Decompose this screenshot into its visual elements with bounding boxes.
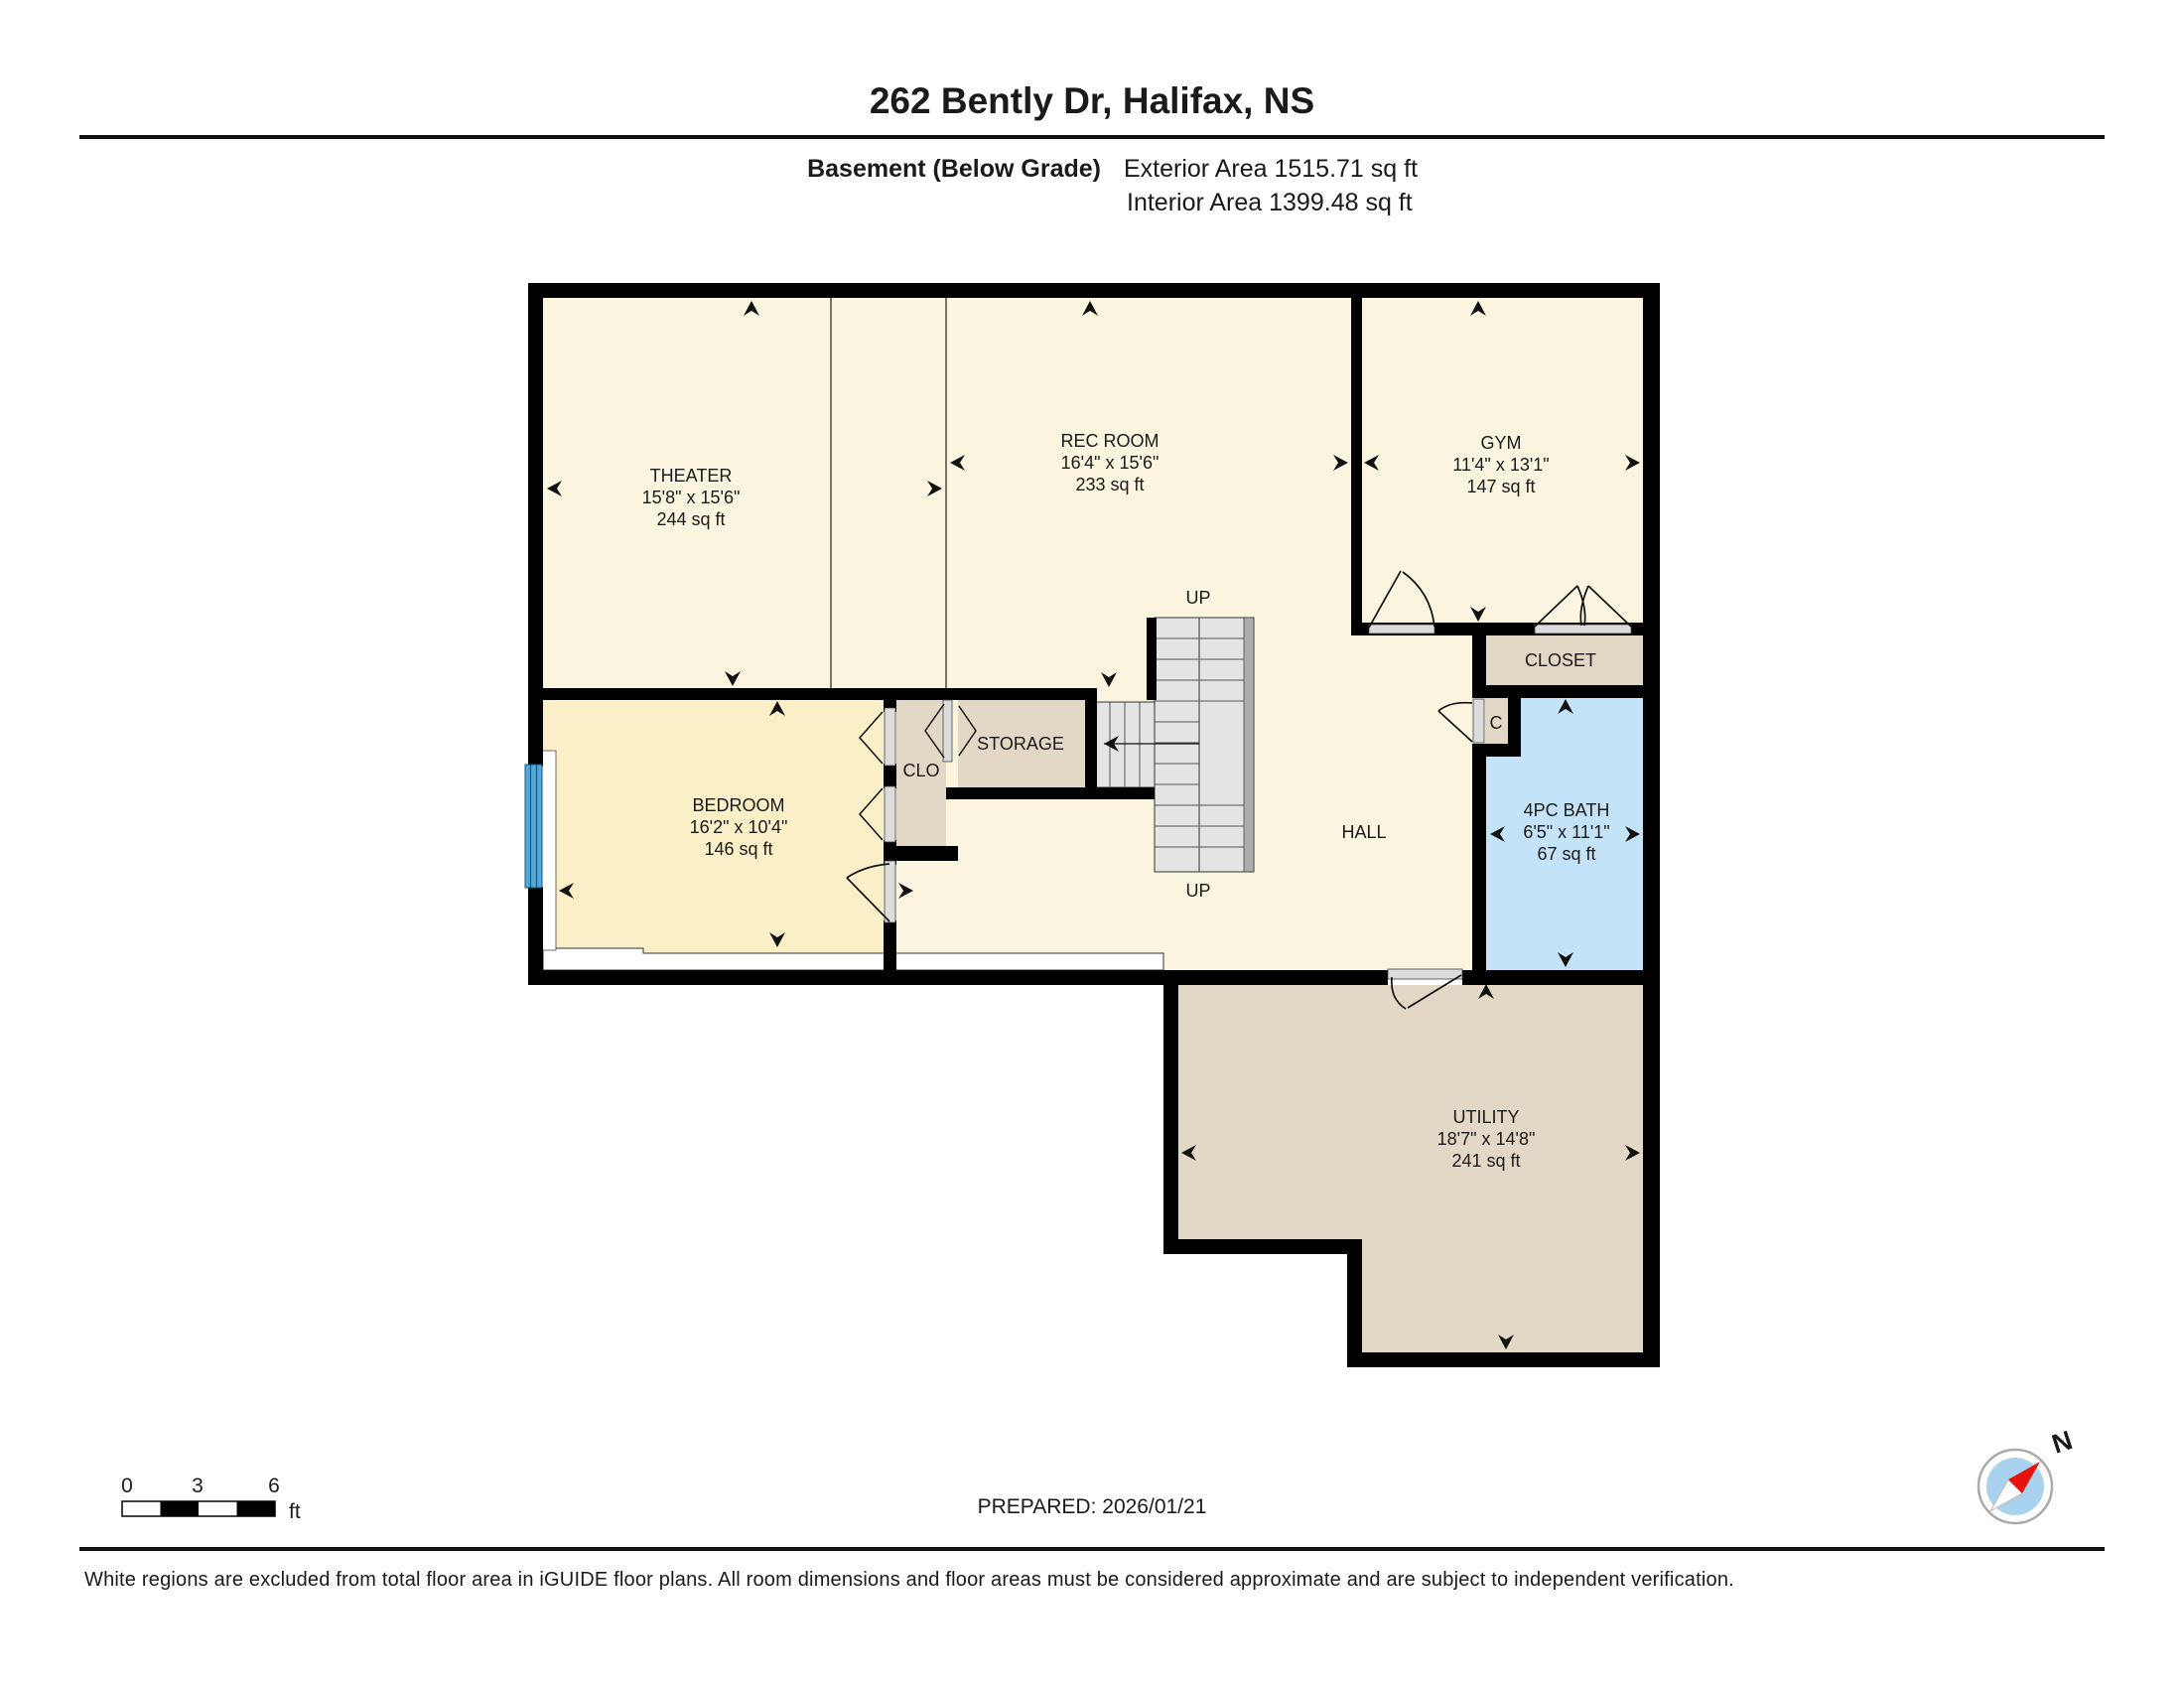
closet-label: CLOSET (1525, 650, 1596, 670)
theater-area: 244 sq ft (656, 509, 725, 529)
door-sill-bedroom (885, 861, 895, 922)
wall-stair-stub (1147, 618, 1157, 700)
exterior-area-value: Exterior Area 1515.71 sq ft (1124, 155, 1418, 183)
interior-area-value: Interior Area 1399.48 sq ft (1127, 189, 1413, 216)
disclaimer-text: White regions are excluded from total fl… (84, 1569, 1734, 1591)
door-sill-clo-storage (943, 700, 952, 762)
bath-name: 4PC BATH (1524, 800, 1610, 820)
bedroom-window (525, 765, 542, 888)
gym-area: 147 sq ft (1466, 477, 1535, 496)
floor-plan-canvas: 262 Bently Dr, Halifax, NS Basement (Bel… (0, 0, 2184, 1688)
wall-bath-left (1472, 757, 1486, 970)
compass: N (1979, 1425, 2076, 1523)
door-sill-gym-double (1535, 625, 1631, 633)
wall-gym-left (1351, 298, 1362, 635)
utility-dims: 18'7" x 14'8" (1437, 1129, 1536, 1149)
wall-bedroom-right-2 (884, 764, 896, 788)
door-sill-clo-upper (885, 708, 895, 766)
bath-dims: 6'5" x 11'1" (1523, 822, 1609, 842)
header-rule (79, 135, 2105, 139)
bedroom-name: BEDROOM (692, 795, 784, 815)
door-sill-gym-left (1369, 625, 1434, 633)
rec-room-name: REC ROOM (1061, 431, 1160, 451)
scale-unit: ft (289, 1500, 301, 1523)
utility-name: UTILITY (1452, 1107, 1519, 1127)
up-label-bottom: UP (1185, 881, 1210, 901)
c-closet-label: C (1490, 713, 1503, 733)
wall-utility-notch-v (1347, 1239, 1362, 1367)
wall-bedroom-right-4 (884, 920, 896, 970)
theater-name: THEATER (650, 466, 733, 486)
scale-bar: 0 3 6 ft (121, 1475, 301, 1523)
wall-utility-bottom (1347, 1352, 1660, 1367)
scale-bar-seg-4 (237, 1501, 276, 1516)
storage-label: STORAGE (977, 734, 1064, 754)
wall-bottom-bath (1462, 970, 1660, 985)
stair-rail-strip (1244, 618, 1254, 872)
rec-room-area: 233 sq ft (1075, 475, 1144, 494)
wall-right (1643, 283, 1660, 1367)
wall-c-bottom (1472, 744, 1521, 757)
window-glass (525, 765, 542, 888)
window-recess-strip (542, 751, 556, 950)
stair-main-flight (1155, 618, 1254, 872)
compass-north-label: N (2048, 1425, 2076, 1460)
page-title: 262 Bently Dr, Halifax, NS (870, 80, 1314, 121)
scale-tick-0: 0 (121, 1475, 133, 1497)
scale-tick-3: 3 (192, 1475, 204, 1497)
prepared-date: PREPARED: 2026/01/21 (978, 1495, 1207, 1518)
wall-closet-bottom (1472, 685, 1660, 698)
wall-storage-right (1085, 688, 1097, 799)
wall-utility-notch-h (1163, 1239, 1362, 1254)
floor-label: Basement (Below Grade) (807, 155, 1101, 183)
scale-bar-seg-2 (161, 1501, 200, 1516)
theater-dims: 15'8" x 15'6" (642, 488, 741, 507)
bedroom-dims: 16'2" x 10'4" (690, 817, 788, 837)
wall-storage-bottom (946, 787, 1155, 799)
wall-bottom-left (528, 970, 1388, 985)
floor-plan-page: 262 Bently Dr, Halifax, NS Basement (Bel… (0, 0, 2184, 1688)
door-sill-utility (1388, 969, 1462, 979)
wall-mid-horizontal (528, 688, 1085, 700)
wall-utility-left (1163, 970, 1178, 1253)
bath-area: 67 sq ft (1537, 844, 1595, 864)
rec-room-dims: 16'4" x 15'6" (1061, 453, 1160, 473)
footer-rule (79, 1547, 2105, 1551)
gym-dims: 11'4" x 13'1" (1452, 455, 1549, 475)
up-label-top: UP (1185, 588, 1210, 608)
scale-tick-6: 6 (268, 1475, 280, 1497)
door-sill-c-closet (1473, 699, 1484, 743)
gym-name: GYM (1480, 433, 1521, 453)
clo-label: CLO (902, 761, 939, 780)
hall-label: HALL (1341, 822, 1386, 842)
utility-fill (1178, 985, 1643, 1352)
door-sill-clo-lower (885, 786, 895, 842)
utility-area: 241 sq ft (1451, 1151, 1520, 1171)
wall-top (528, 283, 1660, 298)
bedroom-area: 146 sq ft (704, 839, 772, 859)
